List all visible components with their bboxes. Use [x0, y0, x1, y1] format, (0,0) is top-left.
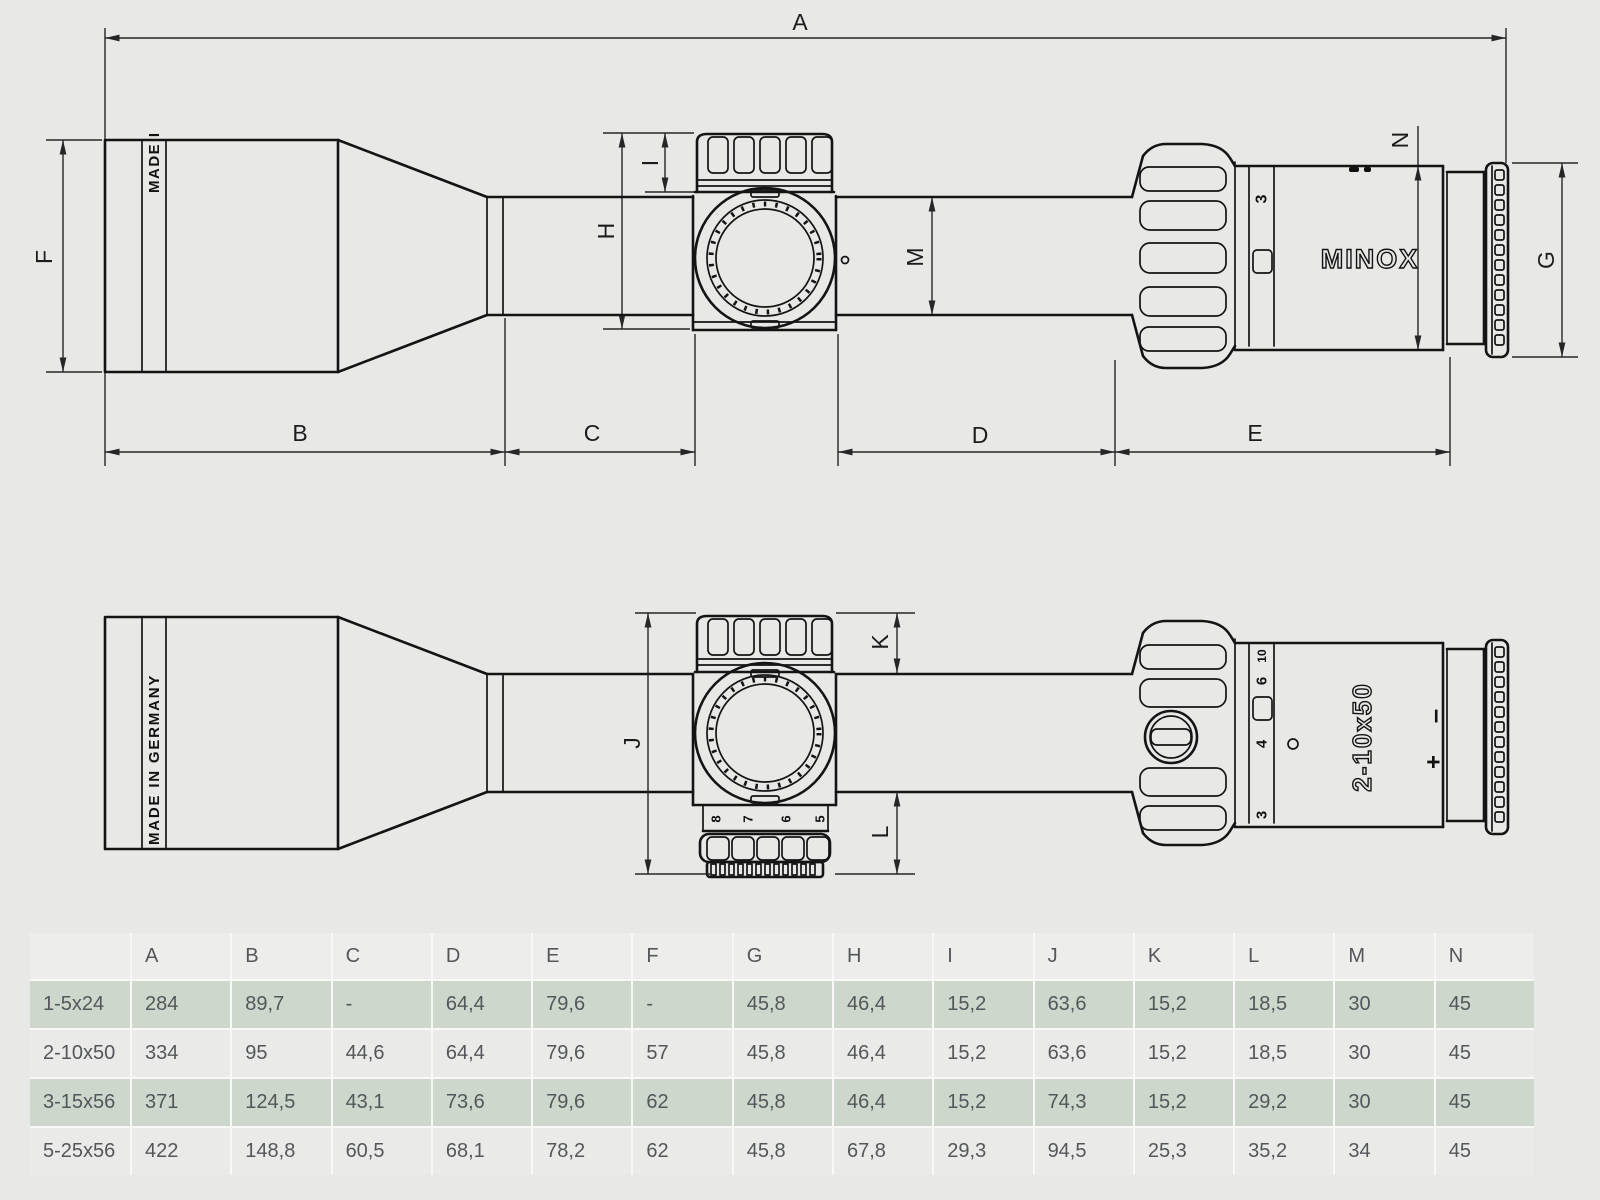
- dim-label-l: L: [867, 825, 893, 838]
- dim-label-i: I: [637, 160, 663, 166]
- dim-label-j: J: [619, 737, 645, 749]
- illumination-knob: 8 7 6 5: [700, 805, 830, 877]
- table-cell: 46,4: [834, 1030, 932, 1077]
- dim-label-g: G: [1533, 251, 1559, 269]
- riflescope-dimension-sheet: A B C D E F H I M N G MADE I: [0, 0, 1600, 1200]
- table-cell: 63,6: [1035, 981, 1133, 1028]
- table-cell: 95: [232, 1030, 330, 1077]
- table-cell: 15,2: [934, 981, 1032, 1028]
- table-cell: 45: [1436, 1128, 1534, 1175]
- magnification-ring-top: [1143, 144, 1235, 166]
- scope-top-outline: MADE IN GERMANY: [105, 616, 1508, 877]
- serration-teeth: [711, 864, 815, 875]
- illum-number-6: 6: [779, 815, 794, 822]
- table-cell: 45: [1436, 1079, 1534, 1126]
- dimension-table: A B C D E F G H I J K L M N 1-5x24 284 8…: [30, 933, 1534, 1175]
- mag-number-4: 4: [1254, 739, 1271, 748]
- elevation-turret-knob-top: [695, 663, 835, 803]
- table-cell: 64,4: [433, 981, 531, 1028]
- table-cell: 15,2: [1135, 1030, 1233, 1077]
- illum-number-8: 8: [709, 815, 724, 822]
- table-cell: 45,8: [734, 1079, 832, 1126]
- table-cell: 73,6: [433, 1079, 531, 1126]
- table-cell: 30: [1335, 1079, 1433, 1126]
- illum-number-5: 5: [813, 815, 828, 822]
- table-cell: 78,2: [533, 1128, 631, 1175]
- col-header-n: N: [1436, 933, 1534, 979]
- table-cell: 67,8: [834, 1128, 932, 1175]
- col-header-f: F: [633, 933, 731, 979]
- dim-label-h: H: [593, 223, 619, 240]
- mag-index-window-top: [1253, 697, 1272, 720]
- table-cell: 371: [132, 1079, 230, 1126]
- made-in-marking: MADE IN GERMANY: [146, 674, 163, 845]
- table-cell: 422: [132, 1128, 230, 1175]
- table-cell: 60,5: [333, 1128, 431, 1175]
- table-cell: 63,6: [1035, 1030, 1133, 1077]
- table-cell: 79,6: [533, 1030, 631, 1077]
- table-cell: 43,1: [333, 1079, 431, 1126]
- table-cell: 64,4: [433, 1030, 531, 1077]
- mag-number-6: 6: [1254, 677, 1271, 685]
- table-cell: 46,4: [834, 1079, 932, 1126]
- dim-label-a: A: [792, 9, 808, 35]
- col-header-e: E: [533, 933, 631, 979]
- col-header-m: M: [1335, 933, 1433, 979]
- index-dot: [1288, 739, 1298, 749]
- dim-label-k: K: [867, 634, 893, 650]
- mag-index-window: [1253, 250, 1272, 273]
- dim-label-f: F: [31, 250, 57, 264]
- col-header-c: C: [333, 933, 431, 979]
- diopter-ring-side: [1486, 163, 1508, 357]
- table-cell: 30: [1335, 981, 1433, 1028]
- tube-screw-dot: [842, 257, 849, 264]
- col-header-d: D: [433, 933, 531, 979]
- table-cell: 79,6: [533, 981, 631, 1028]
- table-cell: 29,3: [934, 1128, 1032, 1175]
- table-cell: 15,2: [934, 1079, 1032, 1126]
- col-header-i: I: [934, 933, 1032, 979]
- dim-label-m: M: [902, 247, 928, 266]
- table-cell: 124,5: [232, 1079, 330, 1126]
- table-cell: 30: [1335, 1030, 1433, 1077]
- brand-logo: MINOX: [1321, 244, 1420, 274]
- mag-ring-screw: [1145, 711, 1197, 763]
- table-cell: 18,5: [1235, 1030, 1333, 1077]
- table-cell: 57: [633, 1030, 731, 1077]
- col-header-h: H: [834, 933, 932, 979]
- table-cell: 94,5: [1035, 1128, 1133, 1175]
- table-cell: 15,2: [934, 1030, 1032, 1077]
- table-cell: 45: [1436, 981, 1534, 1028]
- table-cell: 34: [1335, 1128, 1433, 1175]
- dim-label-e: E: [1247, 420, 1262, 446]
- table-cell: 18,5: [1235, 981, 1333, 1028]
- row-model: 1-5x24: [30, 981, 130, 1028]
- objective-bell: [105, 140, 338, 372]
- table-corner-cell: [30, 933, 130, 979]
- table-cell: 89,7: [232, 981, 330, 1028]
- table-cell: 284: [132, 981, 230, 1028]
- model-marking: 2-10x50: [1347, 682, 1377, 791]
- col-header-a: A: [132, 933, 230, 979]
- table-cell: 15,2: [1135, 1079, 1233, 1126]
- table-cell: 334: [132, 1030, 230, 1077]
- mag-number-3-side: 3: [1254, 194, 1271, 203]
- mag-number-3: 3: [1254, 811, 1271, 819]
- table-cell: 46,4: [834, 981, 932, 1028]
- table-cell: 25,3: [1135, 1128, 1233, 1175]
- row-model: 5-25x56: [30, 1128, 130, 1175]
- side-view: A B C D E F H I M N G MADE I: [31, 9, 1578, 466]
- table-cell: 45: [1436, 1030, 1534, 1077]
- top-view: MADE IN GERMANY: [105, 613, 1508, 877]
- row-model: 2-10x50: [30, 1030, 130, 1077]
- col-header-k: K: [1135, 933, 1233, 979]
- table-cell: 68,1: [433, 1128, 531, 1175]
- col-header-g: G: [734, 933, 832, 979]
- table-cell: 62: [633, 1079, 731, 1126]
- table-cell: 35,2: [1235, 1128, 1333, 1175]
- col-header-l: L: [1235, 933, 1333, 979]
- row-model: 3-15x56: [30, 1079, 130, 1126]
- table-cell: 74,3: [1035, 1079, 1133, 1126]
- diopter-minus-mark: –: [1419, 709, 1449, 723]
- scope-side-outline: MADE I: [105, 132, 1508, 373]
- table-cell: 29,2: [1235, 1079, 1333, 1126]
- illum-number-7: 7: [741, 815, 756, 822]
- table-cell: 44,6: [333, 1030, 431, 1077]
- dim-label-c: C: [584, 420, 601, 446]
- table-cell: 45,8: [734, 1030, 832, 1077]
- table-cell: 79,6: [533, 1079, 631, 1126]
- dim-label-d: D: [972, 422, 989, 448]
- mag-number-10: 10: [1255, 649, 1269, 663]
- table-cell: 148,8: [232, 1128, 330, 1175]
- col-header-b: B: [232, 933, 330, 979]
- windage-turret-knob: [695, 188, 835, 328]
- table-cell: 15,2: [1135, 981, 1233, 1028]
- objective-bell-top: [105, 617, 338, 849]
- table-cell: -: [633, 981, 731, 1028]
- diopter-ring-top: [1486, 640, 1508, 834]
- dim-label-n: N: [1387, 132, 1413, 149]
- made-in-marking-partial: MADE I: [146, 132, 163, 194]
- col-header-j: J: [1035, 933, 1133, 979]
- table-cell: 62: [633, 1128, 731, 1175]
- table-cell: -: [333, 981, 431, 1028]
- table-cell: 45,8: [734, 1128, 832, 1175]
- table-cell: 45,8: [734, 981, 832, 1028]
- dim-label-b: B: [292, 420, 307, 446]
